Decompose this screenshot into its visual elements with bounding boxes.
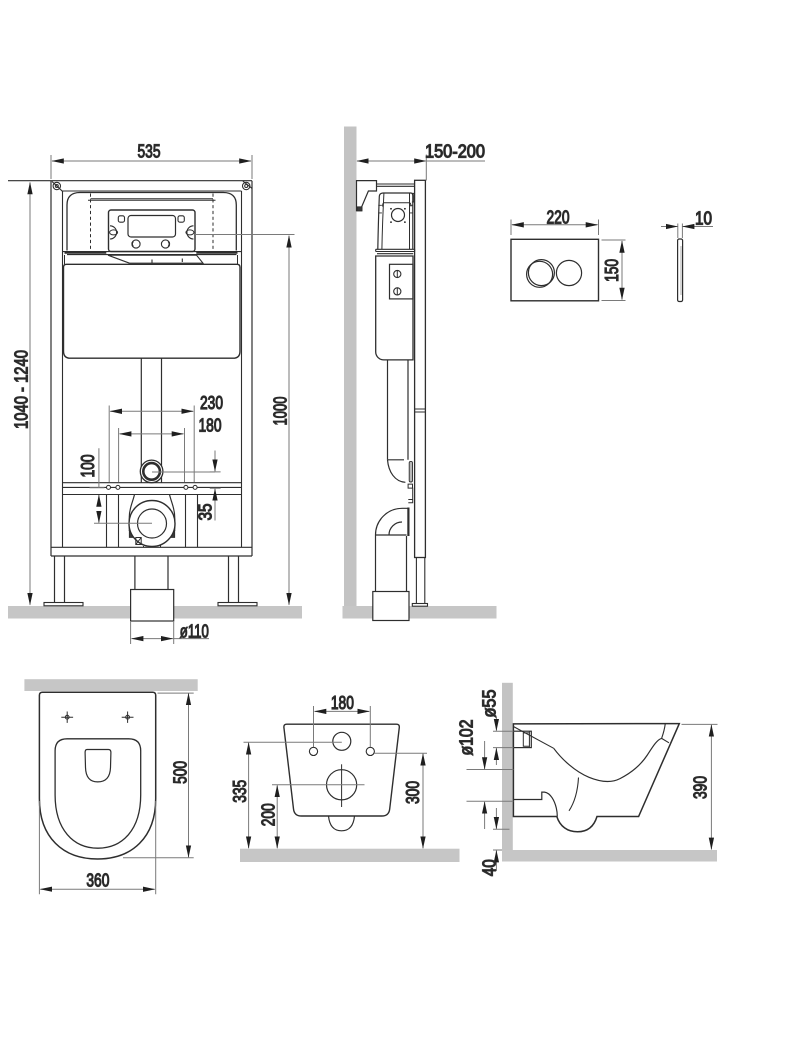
svg-text:ø102: ø102: [455, 720, 476, 756]
svg-text:200: 200: [258, 803, 279, 826]
svg-text:150: 150: [601, 259, 622, 282]
svg-text:500: 500: [169, 761, 190, 784]
svg-text:150-200: 150-200: [425, 141, 485, 162]
svg-text:1040 - 1240: 1040 - 1240: [10, 350, 31, 429]
svg-text:40: 40: [478, 859, 499, 876]
svg-text:390: 390: [690, 776, 711, 799]
svg-text:180: 180: [331, 692, 354, 713]
svg-text:10: 10: [695, 207, 712, 228]
svg-text:ø55: ø55: [478, 690, 499, 718]
svg-text:ø110: ø110: [180, 621, 209, 642]
svg-text:230: 230: [200, 392, 223, 413]
svg-text:180: 180: [199, 415, 222, 436]
svg-text:220: 220: [547, 206, 570, 227]
svg-text:335: 335: [229, 780, 250, 803]
svg-text:535: 535: [138, 141, 161, 162]
svg-text:35: 35: [194, 504, 215, 521]
svg-text:300: 300: [402, 781, 423, 804]
svg-text:360: 360: [86, 869, 109, 890]
svg-text:100: 100: [77, 455, 98, 478]
svg-text:1000: 1000: [269, 397, 290, 426]
